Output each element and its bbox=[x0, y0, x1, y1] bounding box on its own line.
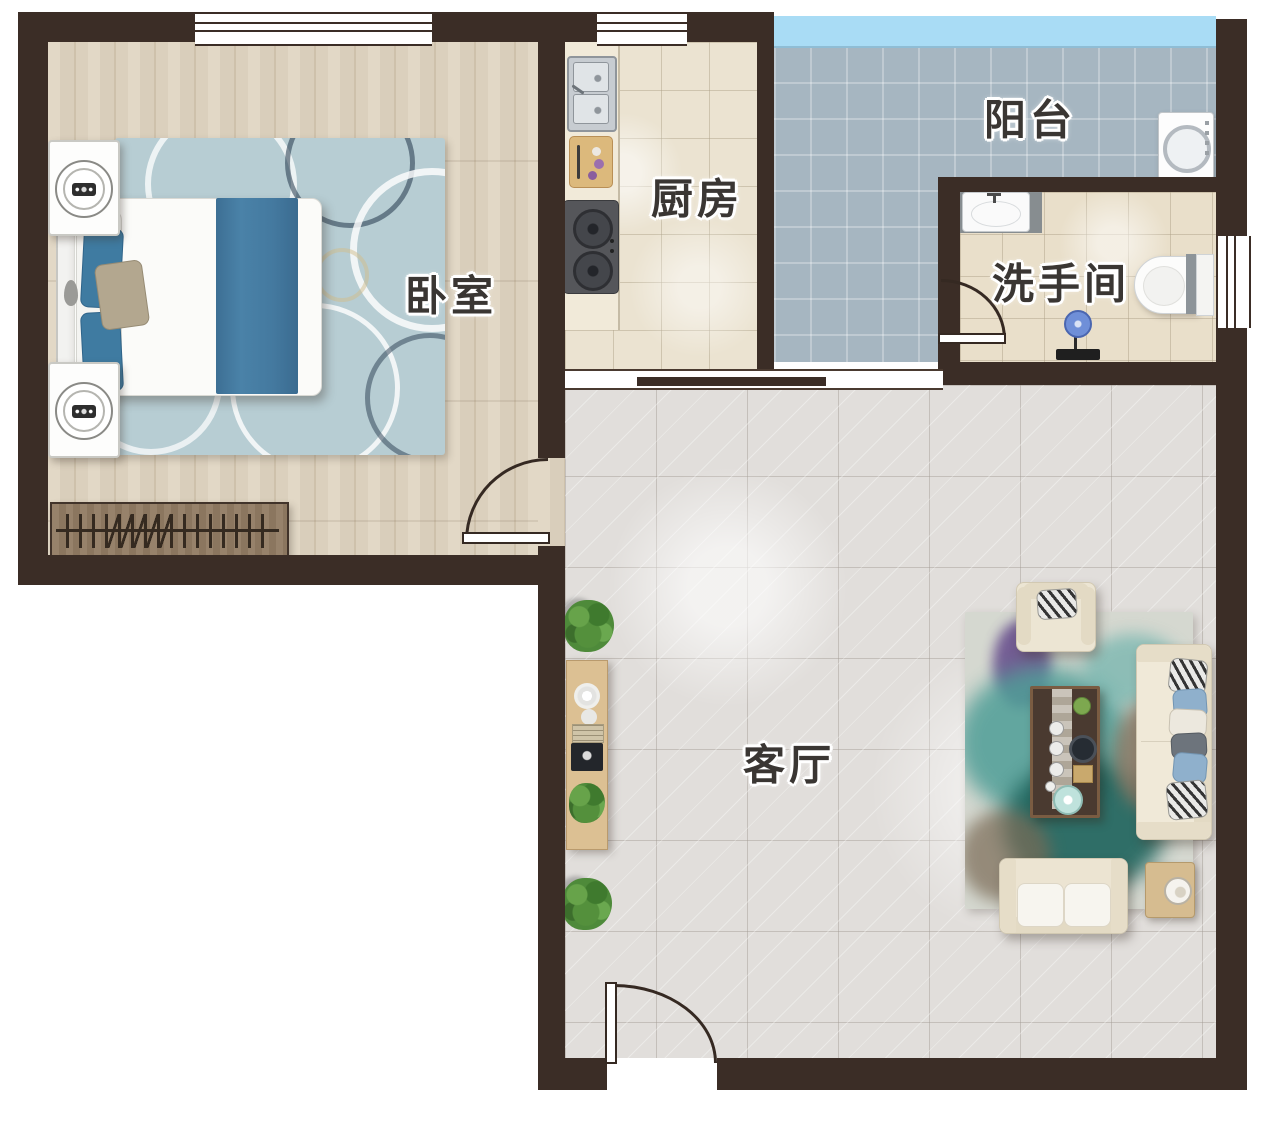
celadon-bowl-icon bbox=[1053, 785, 1083, 815]
cutting-board bbox=[569, 136, 613, 188]
nightstand bbox=[48, 362, 120, 458]
washing-machine bbox=[1158, 112, 1214, 180]
living-room-label: 客厅 bbox=[743, 732, 835, 793]
kitchen-sink bbox=[567, 56, 617, 132]
balcony-label: 阳台 bbox=[984, 87, 1076, 148]
table-lamp-icon bbox=[55, 160, 113, 218]
vegetable bbox=[594, 159, 604, 169]
stove-knob bbox=[610, 239, 614, 243]
coffee-table bbox=[1030, 686, 1100, 818]
washer-controls bbox=[1205, 121, 1209, 161]
decor-flowers bbox=[581, 709, 597, 725]
loveseat-arm bbox=[1111, 859, 1127, 933]
wall bbox=[717, 1058, 1247, 1090]
bedroom-door-leaf bbox=[462, 532, 550, 544]
bed-runner bbox=[216, 198, 298, 394]
seat-cushion bbox=[1064, 883, 1111, 927]
mop-base bbox=[1056, 349, 1100, 360]
radiator-bench bbox=[50, 502, 289, 561]
balcony-glazing bbox=[774, 16, 1216, 48]
wall bbox=[757, 12, 774, 371]
small-cup-icon bbox=[1045, 781, 1056, 792]
bedroom-window bbox=[195, 12, 432, 46]
teapot-icon bbox=[1073, 697, 1091, 715]
wall bbox=[432, 12, 597, 42]
bathroom-sink bbox=[962, 192, 1030, 232]
radiator-ticks bbox=[106, 514, 177, 548]
kitchen-label: 厨房 bbox=[651, 166, 743, 227]
wall bbox=[18, 555, 565, 585]
tv-console bbox=[566, 660, 608, 850]
wall bbox=[538, 1058, 607, 1090]
teacup-icon bbox=[1049, 741, 1064, 756]
stove-knob bbox=[610, 249, 614, 253]
burner-icon bbox=[573, 209, 613, 249]
tray bbox=[1073, 765, 1093, 783]
armchair-arm bbox=[1017, 587, 1031, 645]
bathroom-label: 洗手间 bbox=[992, 251, 1130, 312]
toilet-tank bbox=[1196, 254, 1214, 316]
bowl-icon bbox=[1164, 877, 1192, 905]
seat-cushion bbox=[1017, 883, 1064, 927]
shelf-plant bbox=[569, 783, 605, 823]
burner-icon bbox=[573, 251, 613, 291]
toilet-tank bbox=[1186, 254, 1196, 314]
rug-ring bbox=[315, 248, 369, 302]
side-table bbox=[1145, 862, 1195, 918]
knife-icon bbox=[577, 145, 580, 179]
vegetable bbox=[592, 147, 601, 156]
sink-basin bbox=[573, 94, 609, 124]
books bbox=[572, 724, 604, 743]
loveseat bbox=[999, 858, 1128, 934]
floor-plan: 卧室 厨房 阳台 洗手间 客厅 bbox=[0, 0, 1280, 1129]
wall bbox=[1216, 328, 1247, 1090]
three-seat-sofa bbox=[1136, 644, 1212, 840]
wall bbox=[1216, 19, 1247, 236]
bathroom-door-leaf bbox=[938, 333, 1006, 344]
teacup-icon bbox=[1049, 721, 1064, 736]
armchair bbox=[1016, 582, 1096, 652]
sliding-door-panel bbox=[637, 377, 826, 386]
sofa-arm bbox=[1137, 822, 1211, 839]
pillow bbox=[1165, 779, 1209, 821]
wall bbox=[538, 42, 565, 460]
headboard-ornament bbox=[64, 280, 78, 306]
wall bbox=[938, 362, 1216, 385]
kitchen-window bbox=[597, 12, 687, 46]
entrance-door-leaf bbox=[605, 982, 617, 1064]
decor-flowers bbox=[574, 683, 600, 709]
gas-stove bbox=[563, 200, 619, 294]
wall bbox=[538, 543, 565, 1090]
sliding-door-track bbox=[565, 369, 943, 390]
wall bbox=[938, 177, 1216, 192]
wall bbox=[18, 12, 48, 585]
teacup-icon bbox=[1049, 762, 1064, 777]
bedroom-label: 卧室 bbox=[405, 263, 497, 324]
bathroom-window bbox=[1216, 236, 1251, 328]
nightstand bbox=[48, 140, 120, 236]
tv bbox=[571, 743, 603, 771]
toilet-bowl bbox=[1143, 266, 1185, 306]
dark-bowl-icon bbox=[1069, 735, 1097, 763]
pillow bbox=[1036, 588, 1078, 621]
washer-drum-icon bbox=[1163, 125, 1211, 173]
mop-head-icon bbox=[1064, 310, 1092, 338]
bathroom-vanity bbox=[946, 190, 1042, 233]
sink-bowl bbox=[971, 201, 1021, 227]
bed-pillow-lumbar bbox=[94, 259, 151, 331]
faucet-icon bbox=[987, 193, 1001, 196]
armchair-arm bbox=[1081, 587, 1095, 645]
table-lamp-icon bbox=[55, 382, 113, 440]
vegetable bbox=[588, 171, 597, 180]
loveseat-arm bbox=[1000, 859, 1016, 933]
